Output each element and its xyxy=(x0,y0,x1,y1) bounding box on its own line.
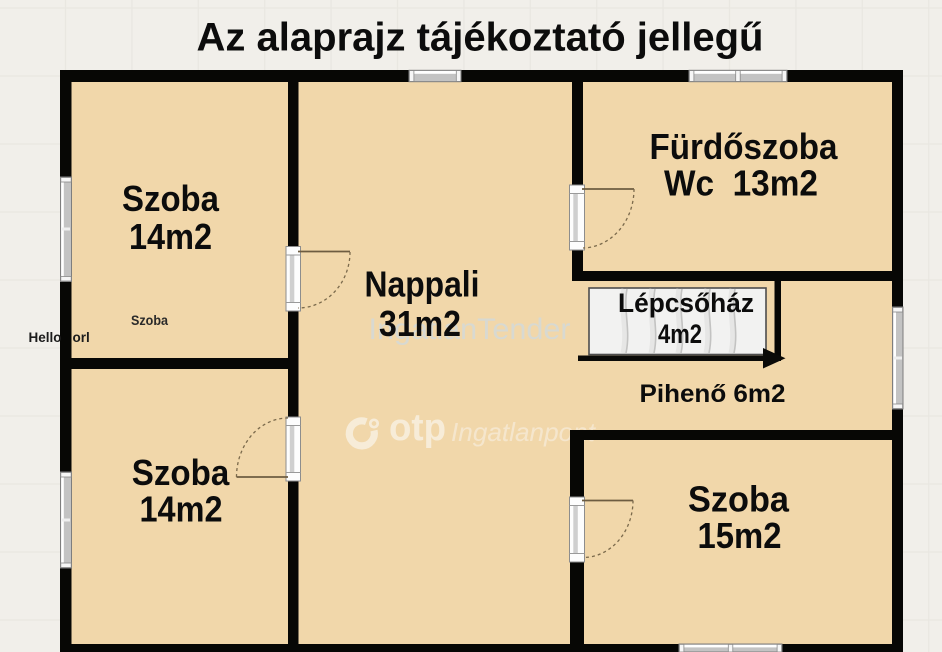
svg-text:14m2: 14m2 xyxy=(129,216,212,257)
svg-text:Nappali: Nappali xyxy=(365,264,480,305)
svg-text:Hello: Hello xyxy=(28,330,61,345)
svg-text:orl: orl xyxy=(73,330,90,345)
svg-text:Wc 13m2: Wc 13m2 xyxy=(664,163,818,204)
svg-text:15m2: 15m2 xyxy=(698,515,782,556)
svg-text:Szoba: Szoba xyxy=(122,178,220,219)
svg-text:Szoba: Szoba xyxy=(132,452,230,493)
svg-text:31m2: 31m2 xyxy=(379,303,461,344)
svg-text:Szoba: Szoba xyxy=(688,479,790,520)
svg-text:Lépcsőház: Lépcsőház xyxy=(618,288,754,318)
svg-text:4m2: 4m2 xyxy=(658,319,702,349)
svg-text:Az alaprajz tájékoztató jelleg: Az alaprajz tájékoztató jellegű xyxy=(197,16,764,60)
svg-text:Fürdőszoba: Fürdőszoba xyxy=(650,126,839,167)
svg-text:Pihenő 6m2: Pihenő 6m2 xyxy=(640,380,786,408)
svg-text:14m2: 14m2 xyxy=(140,489,223,530)
svg-text:otp: otp xyxy=(389,407,446,449)
svg-text:Szoba: Szoba xyxy=(131,312,168,328)
